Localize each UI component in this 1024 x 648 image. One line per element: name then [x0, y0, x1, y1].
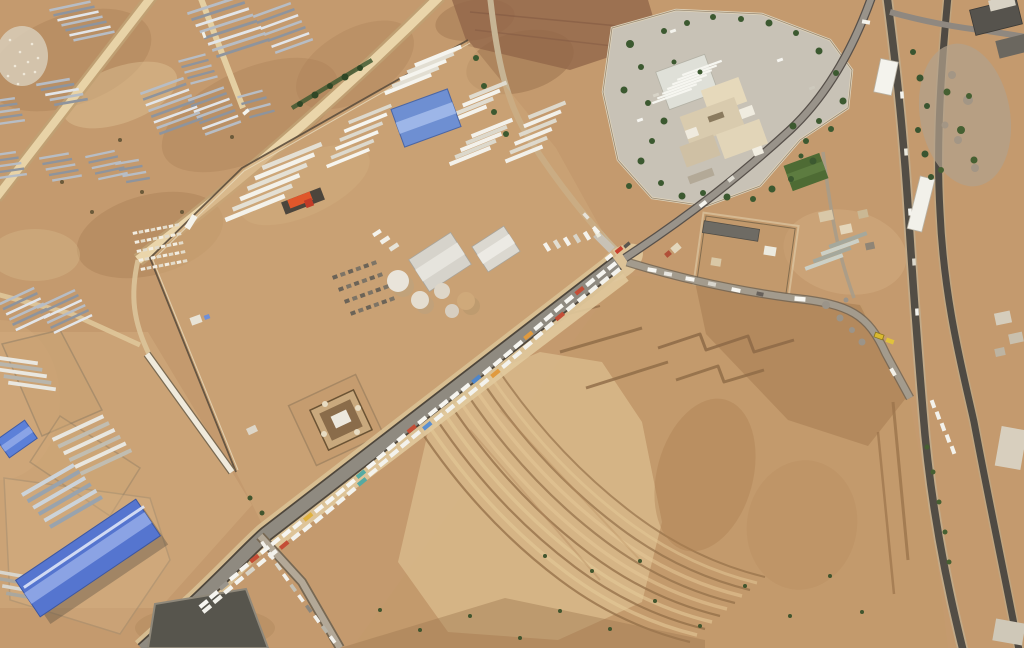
debris — [859, 339, 866, 346]
hedge-trees — [342, 74, 349, 81]
trees — [769, 186, 776, 193]
trees — [649, 138, 655, 144]
gravel-pile — [434, 283, 450, 299]
field-shrubs — [248, 496, 253, 501]
gravel-pile — [387, 270, 409, 292]
rubble-specks — [37, 57, 40, 60]
rubble-specks — [27, 61, 30, 64]
field-shrubs — [590, 569, 594, 573]
trees — [658, 180, 664, 186]
vehicle — [900, 91, 904, 98]
trees — [645, 100, 651, 106]
buildings-item — [354, 429, 360, 435]
field-shrubs — [378, 608, 382, 612]
field-shrubs — [653, 599, 657, 603]
rubble-specks — [7, 75, 10, 78]
median-trees — [928, 174, 934, 180]
hedge-trees — [297, 101, 303, 107]
grass-clumps — [925, 445, 930, 450]
vehicle — [915, 308, 919, 315]
buildings-item — [355, 405, 361, 411]
roadside-trees — [491, 109, 497, 115]
roadside-trees — [803, 138, 809, 144]
shrub-specks — [118, 138, 122, 142]
trees — [672, 60, 677, 65]
grass-clumps — [931, 470, 936, 475]
field-shrubs — [418, 628, 422, 632]
bus — [794, 296, 805, 301]
trees — [679, 193, 686, 200]
shrub-specks — [140, 190, 144, 194]
shrub-specks — [180, 210, 184, 214]
median-trees — [915, 127, 921, 133]
roadside-trees — [790, 123, 797, 130]
field-shrubs — [260, 511, 265, 516]
field-shrubs — [638, 559, 642, 563]
trees — [626, 183, 632, 189]
median-trees — [917, 75, 924, 82]
roadside-trees — [503, 131, 509, 137]
trees — [621, 87, 628, 94]
gravel-pile — [411, 291, 429, 309]
rubble-specks — [17, 83, 20, 86]
trees — [840, 98, 847, 105]
satellite-viewport — [0, 0, 1024, 648]
sand-mound — [457, 292, 475, 310]
field-shrubs — [518, 636, 522, 640]
gravel-pile — [445, 304, 459, 318]
grass-clumps — [938, 167, 944, 173]
trees — [816, 48, 823, 55]
median-trees — [924, 103, 930, 109]
rubble — [971, 164, 979, 172]
rubble-specks — [34, 71, 37, 74]
rubble — [954, 136, 962, 144]
buildings-item — [321, 431, 327, 437]
median-trees — [922, 151, 929, 158]
roadside-trees — [473, 55, 479, 61]
field-shrubs — [698, 624, 702, 628]
shed — [763, 246, 776, 257]
grass-clumps — [937, 500, 942, 505]
rubble-specks — [19, 51, 22, 54]
buildings-item — [322, 401, 328, 407]
trees — [700, 190, 706, 196]
trees — [626, 40, 634, 48]
roadside-trees — [481, 83, 487, 89]
vehicle — [912, 258, 916, 265]
debris — [822, 301, 830, 309]
trees — [684, 20, 690, 26]
hedge-trees — [357, 65, 363, 71]
trees — [750, 196, 756, 202]
vehicle — [908, 208, 912, 215]
field-shrubs — [828, 574, 832, 578]
grass-clumps — [957, 126, 965, 134]
trees — [710, 14, 716, 20]
debris — [844, 298, 849, 303]
grass-clumps — [944, 89, 951, 96]
trees — [724, 194, 731, 201]
grass-clumps — [971, 157, 978, 164]
rubble-specks — [14, 65, 17, 68]
trees — [766, 20, 773, 27]
shrub-specks — [230, 135, 234, 139]
field-shrubs — [558, 609, 562, 613]
shed — [710, 257, 721, 266]
trees — [793, 30, 799, 36]
roadside-trees — [799, 154, 804, 159]
roadside-trees — [816, 118, 822, 124]
debris — [849, 327, 855, 333]
shrub-specks — [60, 180, 64, 184]
satellite-image — [0, 0, 1024, 648]
rubble-specks — [9, 39, 12, 42]
trees — [810, 158, 817, 165]
trees — [638, 158, 645, 165]
grass-clumps — [947, 560, 952, 565]
hedge-trees — [327, 83, 333, 89]
rubble-specks — [31, 43, 34, 46]
grass-clumps — [943, 530, 948, 535]
median-trees — [910, 49, 916, 55]
field-shrubs — [543, 554, 547, 558]
trees — [833, 70, 839, 76]
trees — [788, 176, 794, 182]
shrub-specks — [90, 210, 94, 214]
trees — [661, 28, 667, 34]
field-shrubs — [468, 614, 472, 618]
debris — [837, 315, 844, 322]
rubble — [948, 71, 956, 79]
trees — [698, 70, 703, 75]
vehicle — [904, 148, 908, 155]
field-shrubs — [788, 614, 792, 618]
field-shrubs — [608, 627, 612, 631]
trees — [661, 118, 668, 125]
trees — [738, 16, 744, 22]
trees — [828, 126, 834, 132]
rubble — [942, 122, 949, 129]
trees — [638, 64, 644, 70]
hedge-trees — [312, 92, 319, 99]
grass-clumps — [966, 93, 972, 99]
rubble-specks — [23, 73, 26, 76]
field-shrubs — [860, 610, 864, 614]
field-shrubs — [743, 584, 747, 588]
